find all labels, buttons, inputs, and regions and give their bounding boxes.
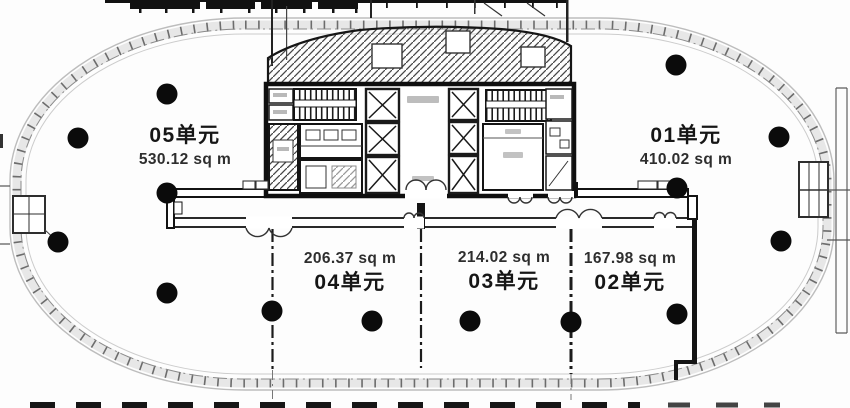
unit-01-area: 410.02 sq m <box>640 151 732 169</box>
unit-03-name: 03单元 <box>458 270 550 294</box>
structural-column-dot <box>362 311 383 332</box>
structural-column-dot <box>157 84 178 105</box>
floorplan-drawing <box>0 0 850 408</box>
core-hatched-band <box>268 27 571 86</box>
stair-right <box>486 90 551 121</box>
unit-05-label: 05单元 530.12 sq m <box>139 124 231 169</box>
left-edge-guides <box>0 134 10 244</box>
unit-04-label: 206.37 sq m 04单元 <box>304 250 396 295</box>
structural-column-dot <box>771 231 792 252</box>
unit-01-label: 01单元 410.02 sq m <box>640 124 732 169</box>
unit-04-name: 04单元 <box>304 271 396 295</box>
floorplan-canvas: 05单元 530.12 sq m 01单元 410.02 sq m 206.37… <box>0 0 850 408</box>
right-window-detail <box>799 162 828 217</box>
unit-03-label: 214.02 sq m 03单元 <box>458 249 550 294</box>
structural-column-dot <box>561 312 582 333</box>
unit-05-name: 05单元 <box>139 124 231 148</box>
elevator-bank-right <box>449 89 478 193</box>
structural-column-dot <box>460 311 481 332</box>
stair-left <box>294 89 356 120</box>
unit-02-name: 02单元 <box>584 271 676 295</box>
structural-column-dot <box>68 128 89 149</box>
structural-column-dot <box>157 183 178 204</box>
unit-03-area: 214.02 sq m <box>458 249 550 267</box>
unit-02-label: 167.98 sq m 02单元 <box>584 250 676 295</box>
unit-01-name: 01单元 <box>640 124 732 148</box>
structural-column-dot <box>667 178 688 199</box>
structural-column-dot <box>48 232 69 253</box>
unit-02-area: 167.98 sq m <box>584 250 676 268</box>
unit-05-area: 530.12 sq m <box>139 151 231 169</box>
structural-column-dot <box>262 301 283 322</box>
unit-04-area: 206.37 sq m <box>304 250 396 268</box>
structural-column-dot <box>769 127 790 148</box>
structural-column-dot <box>667 304 688 325</box>
structural-column-dot <box>666 55 687 76</box>
elevator-bank-left <box>366 89 399 193</box>
structural-column-dot <box>157 283 178 304</box>
unit02-east-wall <box>674 218 697 380</box>
